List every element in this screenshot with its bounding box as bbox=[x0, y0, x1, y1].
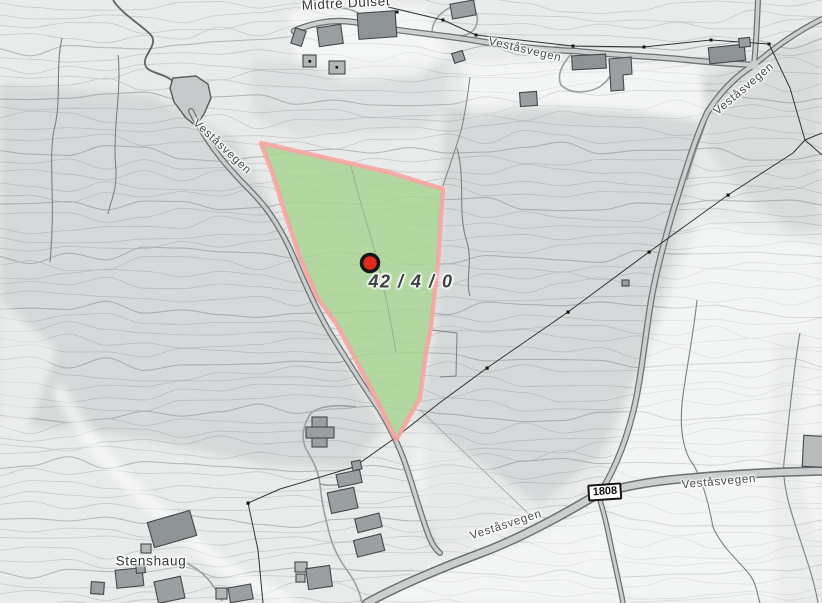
parcel-marker[interactable] bbox=[362, 255, 379, 272]
map-background bbox=[0, 0, 822, 603]
place-label-stenshaug: Stenshaug bbox=[116, 554, 187, 569]
map-canvas[interactable]: Midtre Dulset Veståsvegen Veståsvegen Ve… bbox=[0, 0, 822, 603]
parcel-label: 42 / 4 / 0 bbox=[368, 272, 453, 293]
road-number-badge: 1808 bbox=[587, 482, 623, 501]
